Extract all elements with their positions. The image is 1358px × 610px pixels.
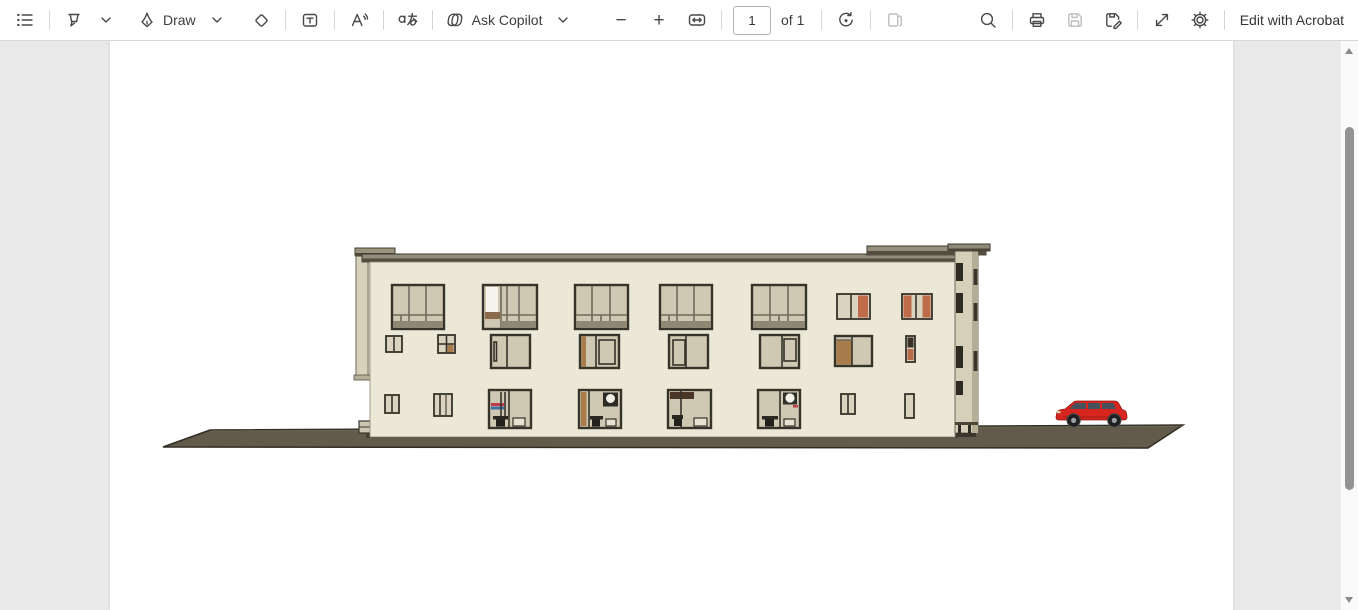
divider xyxy=(432,10,433,30)
zoom-in-icon: + xyxy=(653,11,664,30)
window xyxy=(837,294,870,319)
zoom-out-button[interactable]: − xyxy=(606,5,636,35)
window xyxy=(760,335,799,368)
search-button[interactable] xyxy=(973,5,1003,35)
draw-dropdown[interactable] xyxy=(202,5,232,35)
save-as-button[interactable] xyxy=(1098,5,1128,35)
ask-copilot-button[interactable]: Ask Copilot xyxy=(442,5,547,35)
window xyxy=(902,294,932,319)
table-of-contents-button[interactable] xyxy=(10,5,40,35)
read-aloud-button[interactable] xyxy=(344,5,374,35)
text-box-icon xyxy=(300,10,320,30)
highlight-button[interactable] xyxy=(59,5,89,35)
scroll-up-arrow[interactable] xyxy=(1345,48,1353,54)
window xyxy=(491,335,530,368)
roof-parapet xyxy=(362,244,990,263)
building-elevation-drawing: .frm{fill:#cfc8b3;stroke:#35332a;stroke-… xyxy=(110,41,1233,610)
fit-to-width-icon xyxy=(687,10,707,30)
scroll-down-arrow[interactable] xyxy=(1345,597,1353,603)
window xyxy=(575,285,628,329)
car-wheel xyxy=(1108,414,1121,427)
window xyxy=(434,394,452,416)
fit-to-width-button[interactable] xyxy=(682,5,712,35)
window xyxy=(438,335,455,353)
window xyxy=(580,335,619,368)
add-text-button[interactable] xyxy=(295,5,325,35)
print-icon xyxy=(1027,10,1047,30)
pdf-page: .frm{fill:#cfc8b3;stroke:#35332a;stroke-… xyxy=(110,41,1233,610)
zoom-in-button[interactable]: + xyxy=(644,5,674,35)
window xyxy=(835,336,872,366)
window xyxy=(579,390,621,428)
window xyxy=(752,285,806,329)
page-view-button[interactable] xyxy=(880,5,910,35)
window xyxy=(841,394,855,414)
window xyxy=(489,390,531,428)
settings-button[interactable] xyxy=(1185,5,1215,35)
scrollbar-thumb[interactable] xyxy=(1345,127,1354,490)
draw-label: Draw xyxy=(163,12,196,28)
page-count-label: of 1 xyxy=(781,12,804,28)
chevron-down-icon xyxy=(558,17,568,23)
divider xyxy=(821,10,822,30)
translate-button[interactable] xyxy=(393,5,423,35)
window xyxy=(483,285,537,329)
window xyxy=(906,336,915,362)
chevron-down-icon xyxy=(212,17,222,23)
copilot-icon xyxy=(444,10,466,30)
divider xyxy=(334,10,335,30)
window xyxy=(386,336,402,352)
save-as-icon xyxy=(1103,10,1123,30)
toolbar-right-group: Edit with Acrobat xyxy=(973,0,1346,40)
divider xyxy=(49,10,50,30)
red-car xyxy=(1056,401,1127,427)
gear-icon xyxy=(1190,10,1210,30)
toolbar-left-group: Draw xyxy=(10,0,578,40)
window xyxy=(392,285,444,329)
search-icon xyxy=(978,10,998,30)
edit-with-acrobat-button[interactable]: Edit with Acrobat xyxy=(1238,5,1346,35)
draw-pen-icon xyxy=(137,10,157,30)
page-view-icon xyxy=(885,10,905,30)
toolbar-center-group: − + of 1 xyxy=(606,0,910,40)
divider xyxy=(721,10,722,30)
divider xyxy=(285,10,286,30)
erase-button[interactable] xyxy=(246,5,276,35)
divider xyxy=(870,10,871,30)
read-aloud-icon xyxy=(349,10,369,30)
car-wheel xyxy=(1067,414,1080,427)
print-button[interactable] xyxy=(1022,5,1052,35)
translate-icon xyxy=(397,10,419,30)
window xyxy=(668,390,711,428)
eraser-icon xyxy=(251,10,271,30)
window xyxy=(758,390,800,428)
divider xyxy=(1224,10,1225,30)
vertical-scrollbar xyxy=(1340,41,1358,610)
save-icon xyxy=(1065,10,1085,30)
window xyxy=(669,335,708,368)
highlight-dropdown[interactable] xyxy=(91,5,121,35)
save-button[interactable] xyxy=(1060,5,1090,35)
car-windows xyxy=(1070,403,1117,409)
rotate-button[interactable] xyxy=(831,5,861,35)
page-number-input[interactable] xyxy=(733,6,771,35)
divider xyxy=(1137,10,1138,30)
edit-with-acrobat-label: Edit with Acrobat xyxy=(1240,12,1344,28)
window xyxy=(660,285,712,329)
pdf-toolbar: Draw xyxy=(0,0,1358,41)
rotate-icon xyxy=(836,10,856,30)
highlighter-icon xyxy=(64,10,84,30)
divider xyxy=(383,10,384,30)
pdf-viewer-canvas: .frm{fill:#cfc8b3;stroke:#35332a;stroke-… xyxy=(0,41,1358,610)
window xyxy=(905,394,914,418)
divider xyxy=(1012,10,1013,30)
zoom-out-icon: − xyxy=(615,11,626,30)
draw-button[interactable]: Draw xyxy=(135,5,200,35)
window xyxy=(385,395,399,413)
chevron-down-icon xyxy=(101,17,111,23)
fullscreen-button[interactable] xyxy=(1147,5,1177,35)
table-of-contents-icon xyxy=(15,10,35,30)
ask-copilot-dropdown[interactable] xyxy=(548,5,578,35)
car-headlight xyxy=(1057,411,1061,413)
ask-copilot-label: Ask Copilot xyxy=(472,12,543,28)
fullscreen-icon xyxy=(1152,10,1172,30)
